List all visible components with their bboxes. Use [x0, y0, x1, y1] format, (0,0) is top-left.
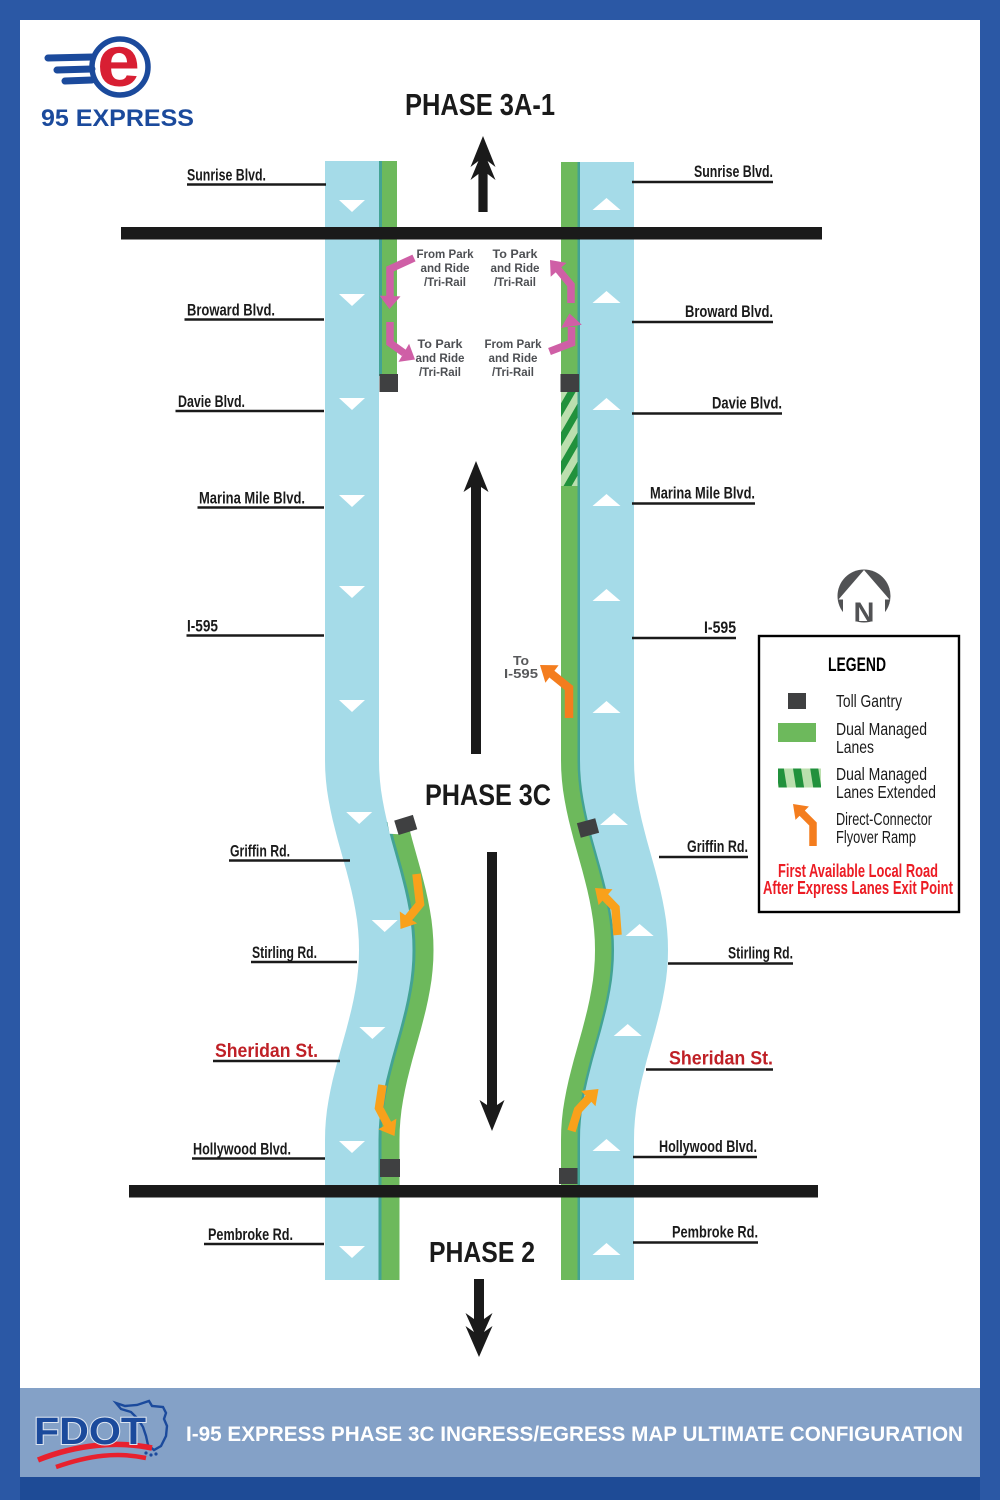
svg-text:Toll Gantry: Toll Gantry — [836, 691, 902, 711]
svg-text:Flyover Ramp: Flyover Ramp — [836, 827, 916, 847]
svg-text:and Ride: and Ride — [421, 261, 470, 275]
svg-text:PHASE 3C: PHASE 3C — [425, 779, 551, 812]
svg-text:Davie Blvd.: Davie Blvd. — [178, 393, 245, 411]
svg-text:Marina Mile Blvd.: Marina Mile Blvd. — [650, 485, 755, 503]
svg-text:To Park: To Park — [493, 247, 538, 261]
svg-text:Hollywood Blvd.: Hollywood Blvd. — [659, 1138, 757, 1156]
svg-text:Griffin Rd.: Griffin Rd. — [230, 843, 290, 861]
svg-text:Sunrise Blvd.: Sunrise Blvd. — [187, 167, 266, 185]
svg-text:Stirling Rd.: Stirling Rd. — [252, 944, 317, 962]
svg-text:Sheridan St.: Sheridan St. — [669, 1048, 773, 1070]
svg-text:/Tri-Rail: /Tri-Rail — [494, 275, 536, 289]
svg-text:and Ride: and Ride — [416, 351, 465, 365]
svg-text:/Tri-Rail: /Tri-Rail — [492, 365, 534, 379]
svg-text:From Park: From Park — [485, 337, 542, 351]
svg-text:From Park: From Park — [417, 247, 474, 261]
svg-text:Direct-Connector: Direct-Connector — [836, 809, 932, 829]
svg-text:Sheridan St.: Sheridan St. — [215, 1040, 318, 1062]
svg-text:and Ride: and Ride — [489, 351, 538, 365]
svg-text:PHASE 3A-1: PHASE 3A-1 — [405, 87, 555, 122]
svg-text:and Ride: and Ride — [491, 261, 540, 275]
svg-text:Hollywood Blvd.: Hollywood Blvd. — [193, 1141, 291, 1159]
svg-text:Sunrise Blvd.: Sunrise Blvd. — [694, 163, 773, 181]
svg-text:PHASE 2: PHASE 2 — [429, 1237, 535, 1269]
svg-text:Pembroke Rd.: Pembroke Rd. — [672, 1224, 758, 1242]
svg-text:I-595: I-595 — [504, 666, 538, 681]
svg-text:To Park: To Park — [418, 337, 463, 351]
svg-text:LEGEND: LEGEND — [828, 655, 886, 676]
svg-text:Griffin Rd.: Griffin Rd. — [687, 838, 748, 856]
svg-text:After Express Lanes Exit Point: After Express Lanes Exit Point — [763, 878, 953, 898]
svg-text:Dual Managed: Dual Managed — [836, 719, 927, 739]
svg-text:N: N — [854, 597, 875, 628]
svg-text:/Tri-Rail: /Tri-Rail — [424, 275, 466, 289]
svg-text:Dual Managed: Dual Managed — [836, 764, 927, 784]
svg-text:e: e — [97, 22, 140, 102]
svg-text:Lanes: Lanes — [836, 737, 874, 757]
svg-text:Marina Mile Blvd.: Marina Mile Blvd. — [199, 490, 305, 508]
svg-text:Lanes Extended: Lanes Extended — [836, 782, 936, 802]
svg-text:95 EXPRESS: 95 EXPRESS — [41, 105, 194, 132]
svg-text:Broward Blvd.: Broward Blvd. — [685, 303, 773, 321]
svg-text:Davie Blvd.: Davie Blvd. — [712, 395, 782, 413]
svg-text:Broward Blvd.: Broward Blvd. — [187, 302, 275, 320]
svg-text:I-595: I-595 — [187, 618, 218, 636]
svg-text:Pembroke Rd.: Pembroke Rd. — [208, 1226, 293, 1244]
svg-text:/Tri-Rail: /Tri-Rail — [419, 365, 461, 379]
svg-text:FDOT: FDOT — [34, 1411, 146, 1453]
svg-text:Stirling Rd.: Stirling Rd. — [728, 945, 793, 963]
svg-text:I-595: I-595 — [704, 619, 736, 637]
svg-text:I-95 EXPRESS PHASE 3C INGRESS/: I-95 EXPRESS PHASE 3C INGRESS/EGRESS MAP… — [186, 1423, 963, 1446]
